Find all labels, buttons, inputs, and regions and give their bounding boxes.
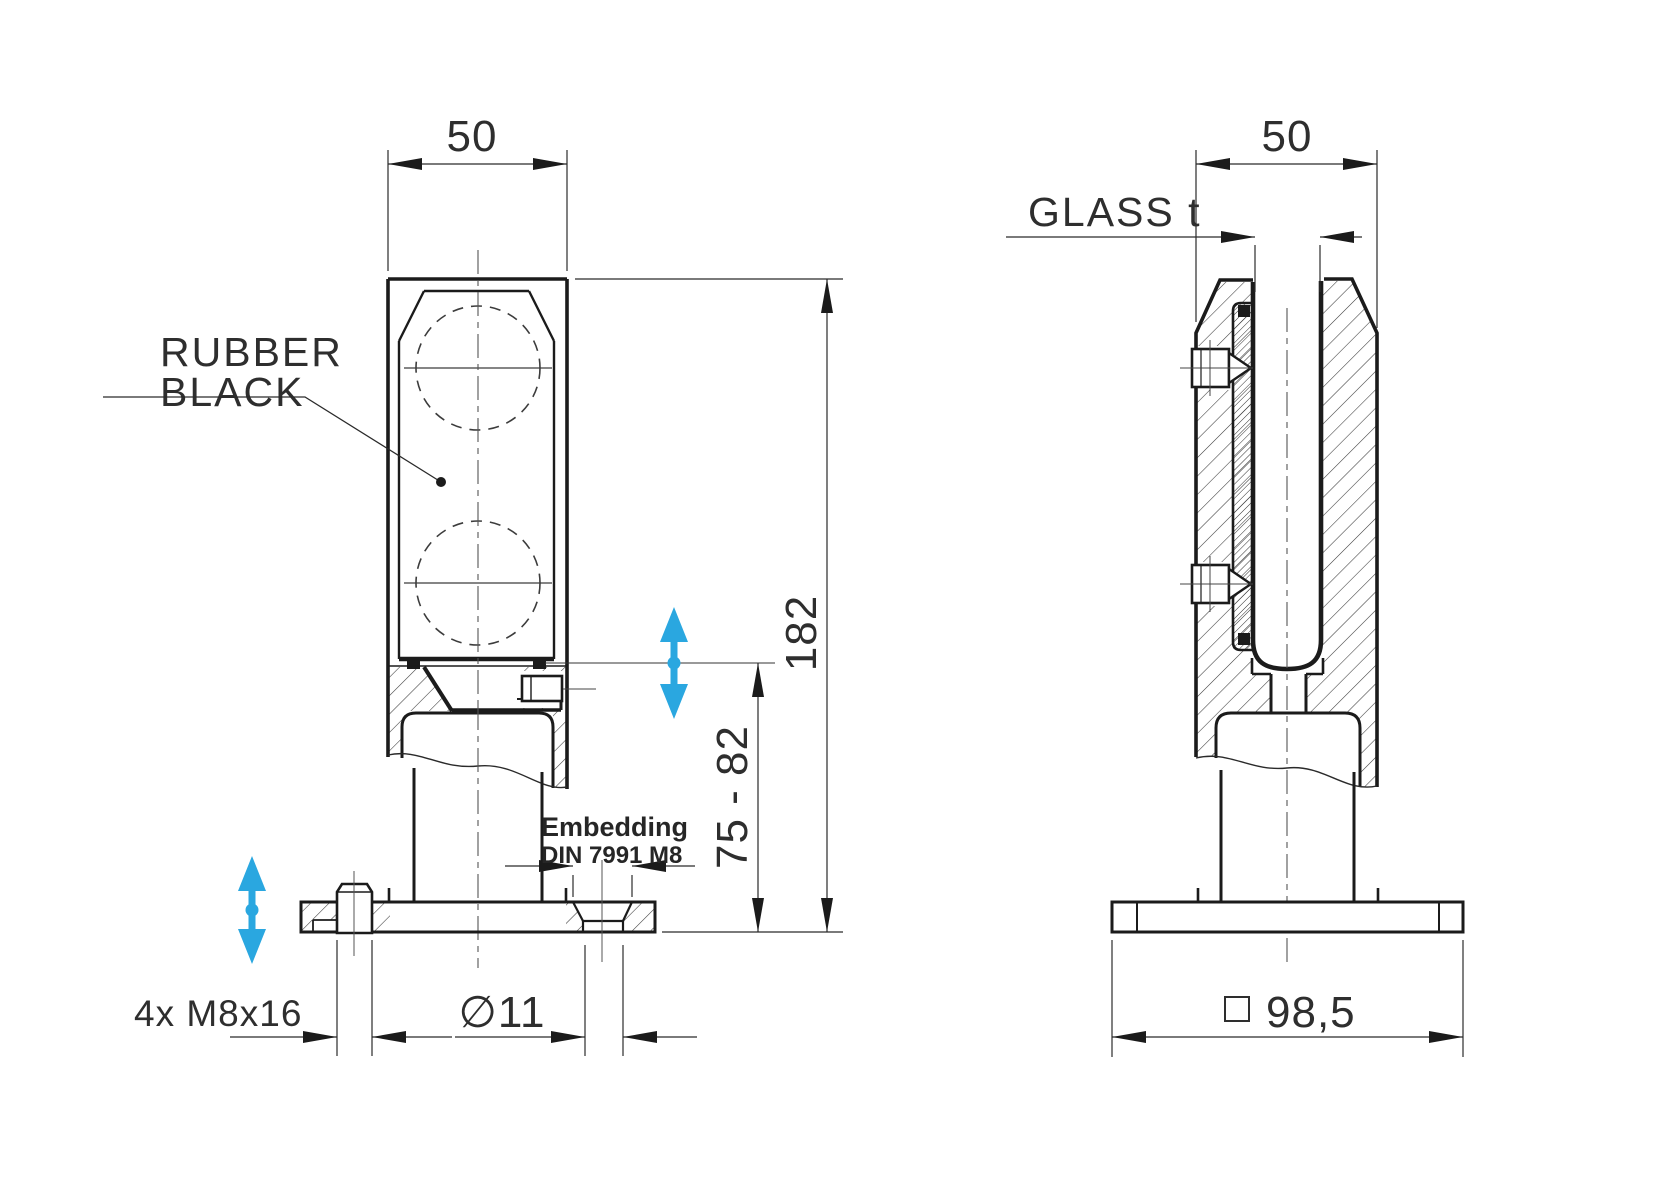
front-width-value: 50 [447, 112, 498, 161]
glass-spigot-drawing: RUBBER BLACK 50 182 [0, 0, 1680, 1189]
hole-dim-value: ∅11 [458, 988, 545, 1037]
front-grub-screw [522, 676, 562, 701]
embedding-note-line1: Embedding [541, 812, 688, 842]
base-dim-value: 98,5 [1266, 988, 1356, 1037]
rubber-foot-right [533, 661, 546, 669]
glass-label: GLASS t [1028, 189, 1202, 235]
height-value-182: 182 [777, 595, 826, 671]
rubber-leader-dot [436, 477, 446, 487]
bolt-dim-value: 4x M8x16 [134, 993, 302, 1034]
side-width-value: 50 [1262, 112, 1313, 161]
embedding-note-line2: DIN 7991 M8 [541, 842, 682, 869]
rubber-label-line2: BLACK [160, 369, 304, 415]
embedding-note: Embedding DIN 7991 M8 [541, 812, 688, 869]
technical-drawing-page: RUBBER BLACK 50 182 [0, 0, 1680, 1189]
side-base-plate [1112, 902, 1463, 932]
rubber-foot-left [407, 661, 420, 669]
adjust-value: 75 - 82 [708, 725, 757, 869]
